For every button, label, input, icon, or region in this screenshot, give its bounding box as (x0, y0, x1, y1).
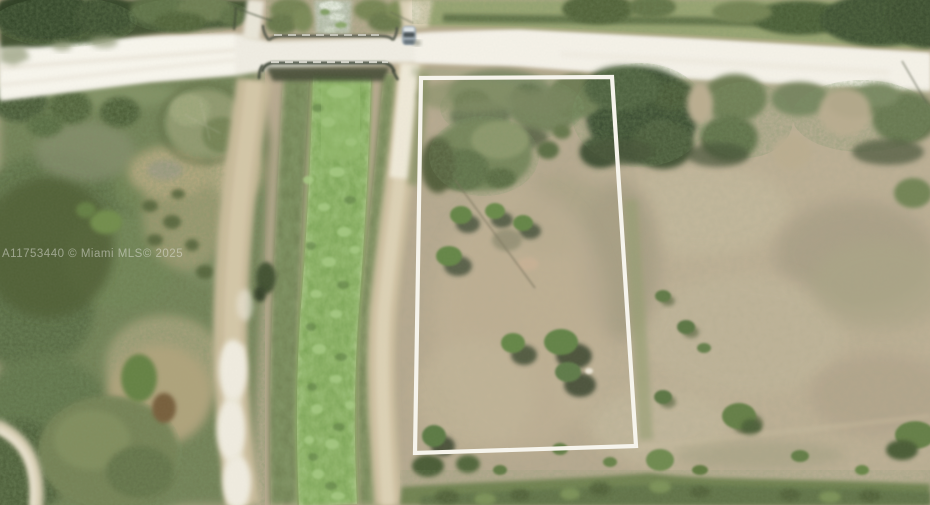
svg-text:A11753440 © Miami MLS© 2025: A11753440 © Miami MLS© 2025 (2, 248, 183, 260)
